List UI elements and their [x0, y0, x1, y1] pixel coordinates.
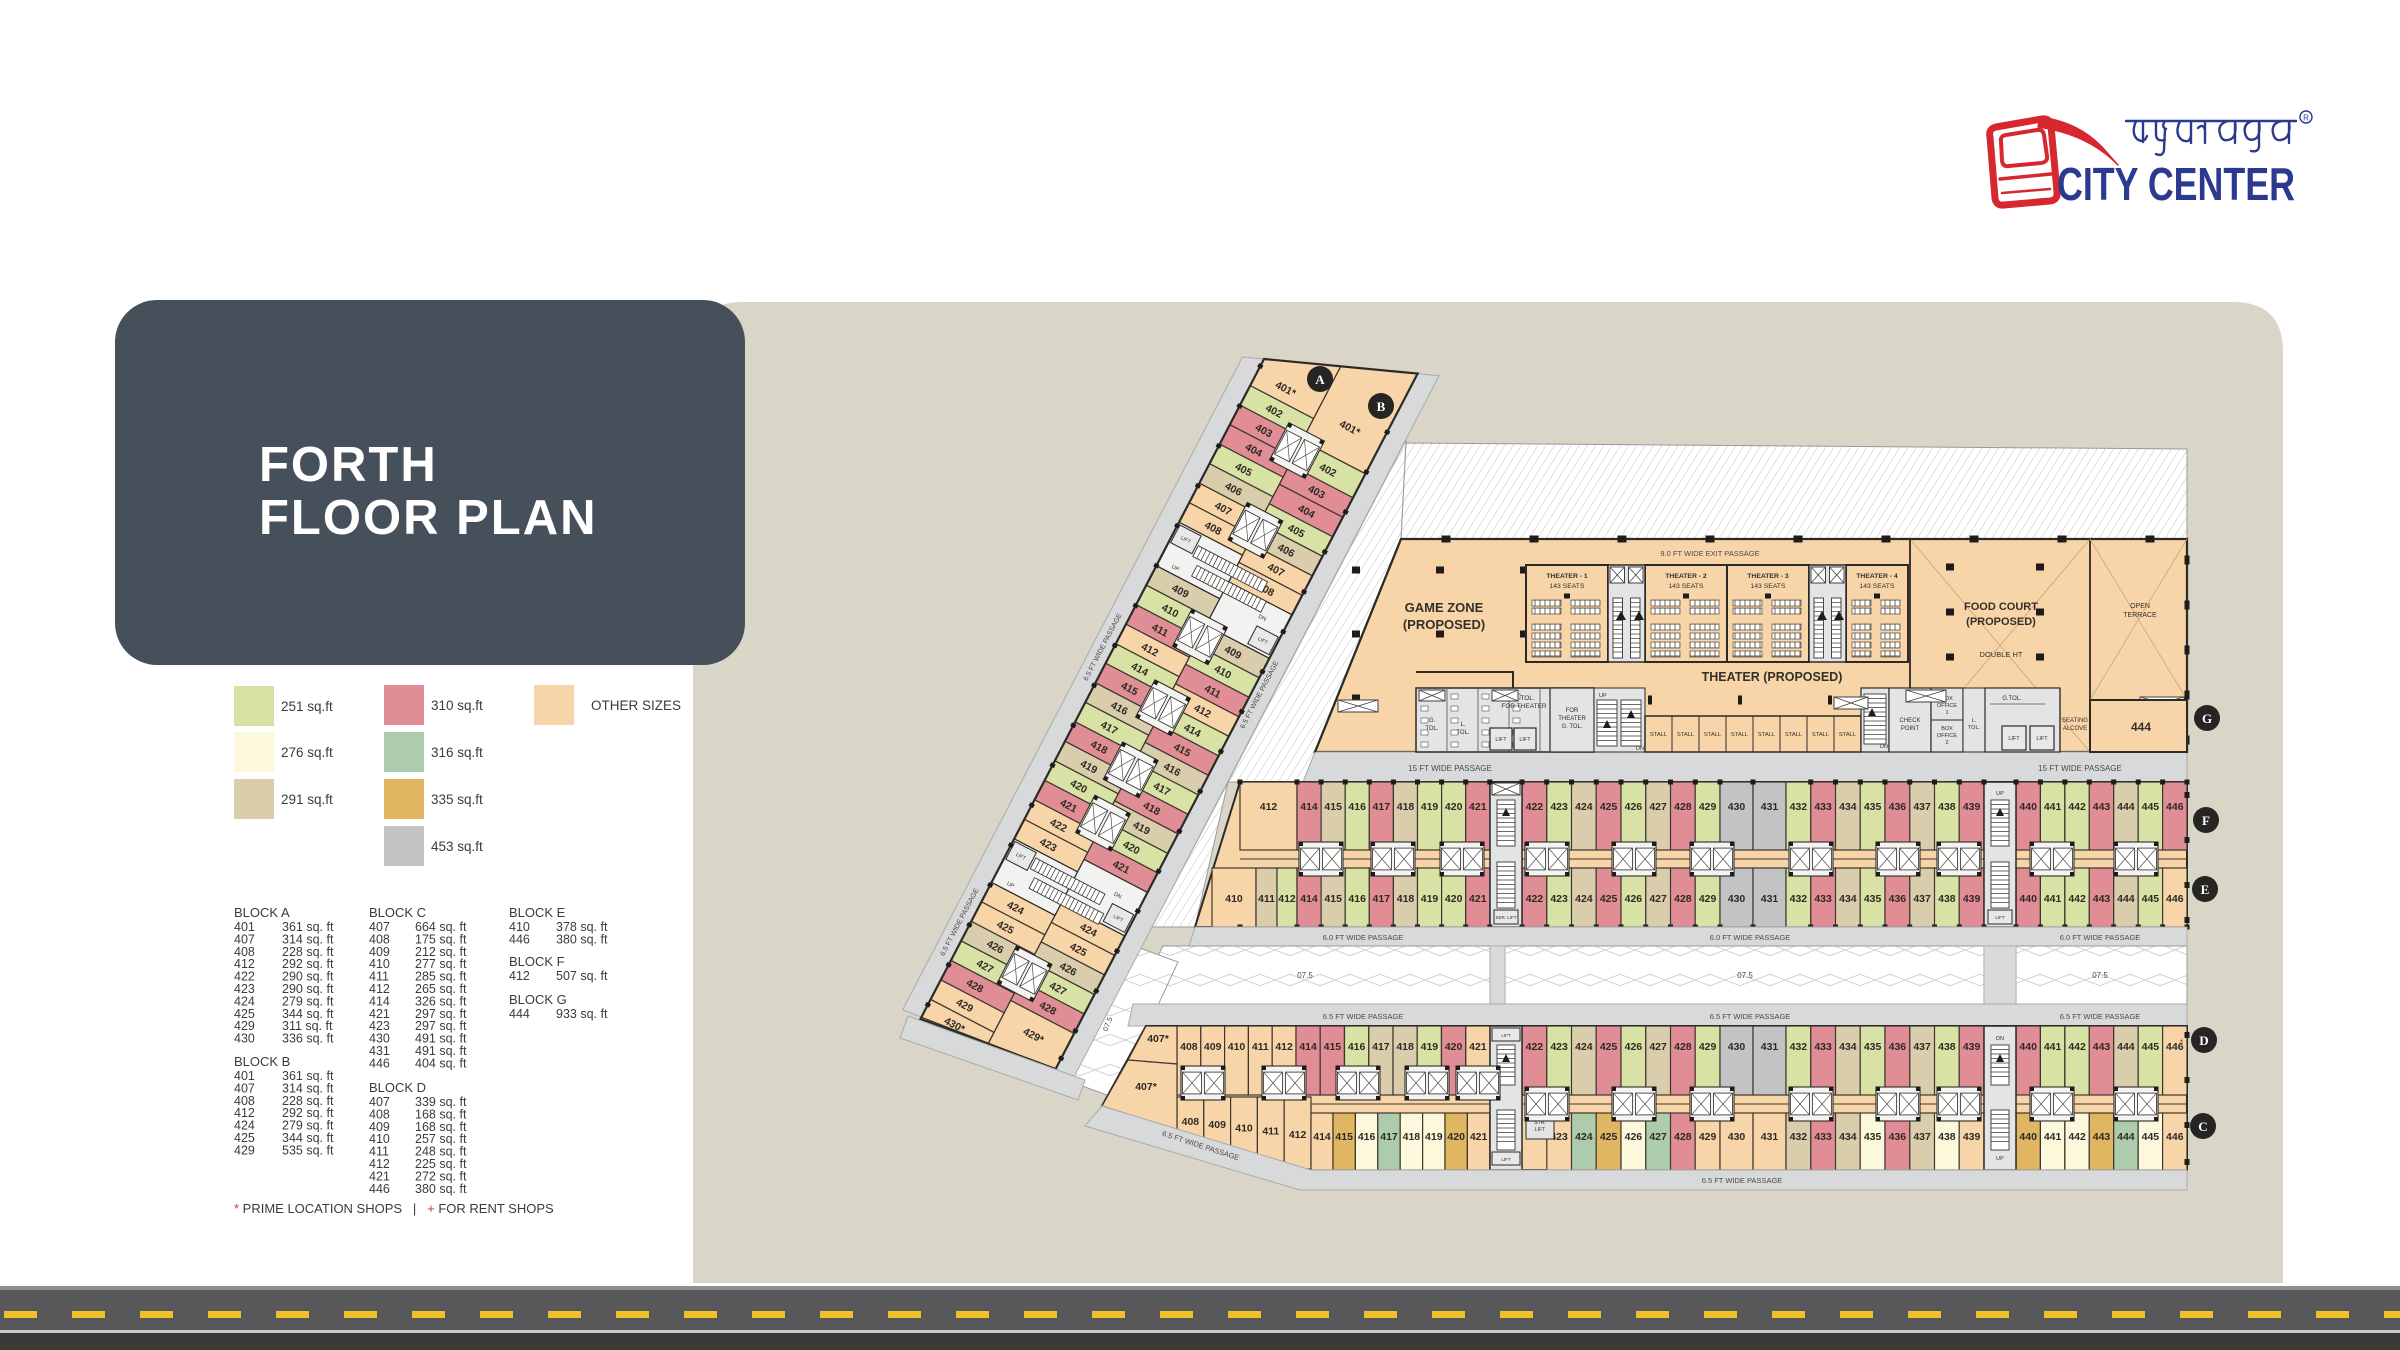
svg-text:STALL: STALL: [1758, 732, 1776, 738]
svg-text:416: 416: [1348, 1041, 1366, 1053]
svg-text:DN: DN: [1880, 744, 1888, 750]
svg-text:* PRIME LOCATION SHOPS | +: * PRIME LOCATION SHOPS | + FOR RENT SHOP…: [234, 1201, 554, 1216]
svg-text:G. TOL.: G. TOL.: [1561, 724, 1582, 730]
svg-text:429: 429: [1699, 893, 1717, 905]
svg-text:15 FT WIDE PASSAGE: 15 FT WIDE PASSAGE: [2038, 764, 2122, 773]
svg-text:6.0 FT WIDE PASSAGE: 6.0 FT WIDE PASSAGE: [1710, 933, 1791, 942]
svg-text:535 sq. ft: 535 sq. ft: [282, 1143, 334, 1157]
svg-text:444: 444: [2117, 801, 2135, 813]
svg-text:SEATING: SEATING: [2062, 718, 2088, 724]
svg-text:424: 424: [1575, 1041, 1593, 1053]
svg-text:431: 431: [1761, 801, 1779, 813]
svg-text:422: 422: [1526, 893, 1544, 905]
svg-text:507 sq. ft: 507 sq. ft: [556, 969, 608, 983]
svg-text:433: 433: [1814, 801, 1832, 813]
svg-text:441: 441: [2044, 1131, 2062, 1143]
svg-text:426: 426: [1625, 1131, 1643, 1143]
svg-text:438: 438: [1938, 1131, 1956, 1143]
svg-text:426: 426: [1625, 893, 1643, 905]
svg-text:419: 419: [1421, 1041, 1439, 1053]
svg-text:6.5 FT WIDE PASSAGE: 6.5 FT WIDE PASSAGE: [1710, 1012, 1791, 1021]
svg-text:421: 421: [1469, 893, 1487, 905]
svg-text:438: 438: [1938, 1041, 1956, 1053]
svg-text:410: 410: [1228, 1041, 1246, 1053]
svg-text:LIFT: LIFT: [1495, 737, 1507, 743]
svg-text:416: 416: [1348, 801, 1366, 813]
svg-text:446: 446: [2166, 801, 2184, 813]
svg-text:276 sq.ft: 276 sq.ft: [281, 745, 333, 760]
svg-text:420: 420: [1447, 1131, 1465, 1143]
svg-text:933 sq. ft: 933 sq. ft: [556, 1007, 608, 1021]
svg-text:F: F: [2202, 813, 2210, 828]
svg-text:411: 411: [1258, 893, 1275, 905]
svg-text:415: 415: [1324, 801, 1342, 813]
svg-text:DN: DN: [1636, 746, 1644, 752]
svg-text:431: 431: [1761, 1131, 1779, 1143]
svg-text:C: C: [2198, 1119, 2207, 1134]
svg-text:408: 408: [1180, 1041, 1198, 1053]
svg-text:442: 442: [2068, 1041, 2086, 1053]
svg-text:SER. LIFT: SER. LIFT: [1495, 915, 1516, 920]
svg-text:424: 424: [1575, 1131, 1593, 1143]
svg-text:BLOCK G: BLOCK G: [509, 992, 567, 1007]
svg-text:TERRACE: TERRACE: [2123, 612, 2157, 619]
svg-text:446: 446: [2166, 893, 2184, 905]
svg-text:437: 437: [1913, 801, 1931, 813]
svg-text:LIFT: LIFT: [1501, 1033, 1511, 1038]
svg-text:445: 445: [2142, 893, 2160, 905]
svg-text:408: 408: [1182, 1116, 1200, 1128]
svg-text:GAME ZONE: GAME ZONE: [1405, 600, 1484, 615]
svg-text:412: 412: [1278, 893, 1296, 905]
svg-text:LIFT: LIFT: [2036, 736, 2048, 742]
svg-text:421: 421: [1469, 801, 1487, 813]
svg-text:380 sq. ft: 380 sq. ft: [556, 932, 608, 946]
svg-text:FLOOR PLAN: FLOOR PLAN: [259, 491, 597, 545]
svg-text:STALL: STALL: [1677, 732, 1695, 738]
svg-text:426: 426: [1625, 1041, 1643, 1053]
svg-text:437: 437: [1913, 893, 1931, 905]
svg-text:1: 1: [1945, 710, 1948, 716]
svg-text:411: 411: [1252, 1041, 1269, 1053]
svg-text:418: 418: [1397, 801, 1415, 813]
svg-text:6.0 FT WIDE PASSAGE: 6.0 FT WIDE PASSAGE: [2060, 933, 2141, 942]
svg-text:427: 427: [1649, 1041, 1667, 1053]
svg-text:BLOCK D: BLOCK D: [369, 1080, 426, 1095]
svg-text:431: 431: [1761, 1041, 1779, 1053]
svg-text:316 sq.ft: 316 sq.ft: [431, 745, 483, 760]
svg-text:414: 414: [1299, 1041, 1317, 1053]
svg-text:291 sq.ft: 291 sq.ft: [281, 792, 333, 807]
svg-text:441: 441: [2044, 893, 2062, 905]
svg-text:ALCOVE: ALCOVE: [2063, 726, 2087, 732]
svg-text:423: 423: [1550, 801, 1568, 813]
svg-text:STALL: STALL: [1731, 732, 1749, 738]
svg-text:143 SEATS: 143 SEATS: [1859, 583, 1894, 590]
svg-text:429: 429: [234, 1143, 255, 1157]
svg-text:440: 440: [2019, 893, 2037, 905]
svg-text:420: 420: [1445, 1041, 1463, 1053]
svg-text:407*: 407*: [1147, 1033, 1170, 1045]
svg-text:429: 429: [1699, 801, 1717, 813]
svg-text:THEATER - 4: THEATER - 4: [1856, 573, 1898, 580]
svg-text:TOL.: TOL.: [1456, 730, 1470, 736]
svg-text:440: 440: [2019, 1131, 2037, 1143]
svg-text:420: 420: [1445, 893, 1463, 905]
svg-text:435: 435: [1864, 893, 1882, 905]
svg-text:444: 444: [2131, 720, 2151, 734]
svg-text:415: 415: [1335, 1131, 1353, 1143]
svg-text:442: 442: [2068, 1131, 2086, 1143]
svg-text:436: 436: [1889, 1041, 1907, 1053]
svg-text:436: 436: [1889, 1131, 1907, 1143]
svg-text:416: 416: [1358, 1131, 1376, 1143]
svg-text:G: G: [2202, 711, 2212, 726]
svg-text:444: 444: [2117, 1041, 2135, 1053]
svg-text:LIFT: LIFT: [1995, 915, 2005, 920]
svg-text:427: 427: [1649, 893, 1667, 905]
svg-text:THEATER - 3: THEATER - 3: [1747, 573, 1789, 580]
svg-text:412: 412: [1260, 801, 1278, 813]
svg-text:444: 444: [2117, 893, 2135, 905]
svg-text:428: 428: [1674, 1131, 1692, 1143]
svg-text:UP: UP: [1996, 1156, 2004, 1162]
svg-text:OFFICE: OFFICE: [1937, 703, 1957, 709]
svg-text:419: 419: [1421, 801, 1439, 813]
svg-text:426: 426: [1625, 801, 1643, 813]
svg-text:6.0 FT WIDE PASSAGE: 6.0 FT WIDE PASSAGE: [1323, 933, 1404, 942]
svg-text:BLOCK E: BLOCK E: [509, 905, 566, 920]
svg-text:15 FT WIDE PASSAGE: 15 FT WIDE PASSAGE: [1408, 764, 1492, 773]
svg-text:07.5: 07.5: [2092, 971, 2108, 980]
svg-text:428: 428: [1674, 893, 1692, 905]
svg-text:FOR THEATER: FOR THEATER: [1501, 703, 1547, 710]
svg-text:414: 414: [1313, 1131, 1331, 1143]
svg-text:445: 445: [2142, 1131, 2160, 1143]
svg-text:418: 418: [1397, 893, 1415, 905]
svg-text:LIFT: LIFT: [1501, 1157, 1511, 1162]
svg-text:443: 443: [2093, 1041, 2111, 1053]
svg-text:443: 443: [2093, 801, 2111, 813]
svg-text:440: 440: [2019, 1041, 2037, 1053]
svg-text:THEATER (PROPOSED): THEATER (PROPOSED): [1702, 670, 1843, 684]
svg-text:434: 434: [1839, 1041, 1857, 1053]
svg-text:446: 446: [369, 1182, 390, 1196]
svg-text:418: 418: [1396, 1041, 1414, 1053]
svg-text:431: 431: [1761, 893, 1779, 905]
svg-text:435: 435: [1864, 1131, 1882, 1143]
svg-text:434: 434: [1839, 801, 1857, 813]
svg-text:421: 421: [1469, 1041, 1487, 1053]
svg-text:TOL.: TOL.: [1425, 726, 1439, 732]
svg-text:G.: G.: [1429, 718, 1436, 724]
svg-text:430: 430: [1728, 1041, 1746, 1053]
svg-text:CITY CENTER: CITY CENTER: [2057, 158, 2295, 210]
svg-text:416: 416: [1348, 893, 1366, 905]
svg-text:412: 412: [509, 969, 530, 983]
svg-text:FOR: FOR: [1566, 708, 1579, 714]
svg-text:423: 423: [1550, 1041, 1568, 1053]
svg-text:OFFICE: OFFICE: [1937, 733, 1957, 739]
svg-text:LIFT: LIFT: [2008, 736, 2020, 742]
svg-text:FORTH: FORTH: [259, 438, 438, 492]
svg-text:446: 446: [2166, 1131, 2184, 1143]
svg-text:TOL.: TOL.: [1968, 725, 1981, 731]
svg-text:LIFT: LIFT: [1535, 1127, 1545, 1133]
svg-text:409: 409: [1204, 1041, 1222, 1053]
svg-text:A: A: [1315, 372, 1325, 387]
svg-text:437: 437: [1913, 1041, 1931, 1053]
svg-text:6.5 FT WIDE PASSAGE: 6.5 FT WIDE PASSAGE: [1702, 1176, 1783, 1185]
svg-text:LIFT: LIFT: [1519, 737, 1531, 743]
svg-text:417: 417: [1372, 1041, 1390, 1053]
svg-text:9.0 FT WIDE EXIT PASSAGE: 9.0 FT WIDE EXIT PASSAGE: [1660, 549, 1759, 558]
svg-text:421: 421: [1470, 1131, 1488, 1143]
svg-text:427: 427: [1649, 1131, 1667, 1143]
svg-text:435: 435: [1864, 1041, 1882, 1053]
svg-text:143 SEATS: 143 SEATS: [1750, 583, 1785, 590]
svg-text:143 SEATS: 143 SEATS: [1549, 583, 1584, 590]
svg-text:OPEN: OPEN: [2130, 603, 2150, 610]
svg-text:411: 411: [1262, 1126, 1279, 1138]
svg-text:417: 417: [1373, 801, 1391, 813]
svg-text:428: 428: [1674, 801, 1692, 813]
svg-text:417: 417: [1373, 893, 1391, 905]
svg-text:439: 439: [1963, 1041, 1981, 1053]
svg-text:419: 419: [1425, 1131, 1443, 1143]
svg-text:429: 429: [1699, 1131, 1717, 1143]
svg-text:THEATER - 1: THEATER - 1: [1546, 573, 1588, 580]
svg-text:407*: 407*: [1135, 1081, 1158, 1093]
svg-text:310 sq.ft: 310 sq.ft: [431, 698, 483, 713]
svg-text:THEATER: THEATER: [1558, 716, 1586, 722]
svg-text:UP: UP: [1996, 791, 2004, 797]
svg-text:251 sq.ft: 251 sq.ft: [281, 699, 333, 714]
svg-text:412: 412: [1275, 1041, 1293, 1053]
svg-text:439: 439: [1963, 893, 1981, 905]
svg-text:444: 444: [509, 1007, 530, 1021]
svg-text:446: 446: [369, 1056, 390, 1070]
svg-text:414: 414: [1300, 801, 1318, 813]
svg-text:BLOCK A: BLOCK A: [234, 905, 290, 920]
svg-text:STALL: STALL: [1704, 732, 1722, 738]
svg-text:STALL: STALL: [1785, 732, 1803, 738]
svg-text:404 sq. ft: 404 sq. ft: [415, 1056, 467, 1070]
svg-text:442: 442: [2068, 893, 2086, 905]
svg-text:FOOD COURT: FOOD COURT: [1964, 601, 2038, 613]
svg-text:417: 417: [1380, 1131, 1398, 1143]
svg-text:412: 412: [1289, 1129, 1307, 1141]
svg-text:445: 445: [2142, 801, 2160, 813]
svg-text:G.TOL.: G.TOL.: [2002, 696, 2022, 702]
svg-text:420: 420: [1445, 801, 1463, 813]
svg-text:436: 436: [1889, 801, 1907, 813]
svg-text:419: 419: [1421, 893, 1439, 905]
svg-text:433: 433: [1814, 1041, 1832, 1053]
svg-text:428: 428: [1674, 1041, 1692, 1053]
svg-text:424: 424: [1575, 801, 1593, 813]
svg-text:415: 415: [1324, 893, 1342, 905]
svg-text:CHECK: CHECK: [1899, 718, 1920, 724]
svg-text:380 sq. ft: 380 sq. ft: [415, 1182, 467, 1196]
svg-text:(PROPOSED): (PROPOSED): [1966, 616, 2036, 628]
svg-text:POINT: POINT: [1901, 726, 1920, 732]
svg-text:432: 432: [1790, 1131, 1808, 1143]
svg-text:432: 432: [1790, 893, 1808, 905]
svg-text:453 sq.ft: 453 sq.ft: [431, 839, 483, 854]
svg-text:429: 429: [1699, 1041, 1717, 1053]
svg-text:(PROPOSED): (PROPOSED): [1403, 617, 1485, 632]
svg-text:D: D: [2199, 1033, 2208, 1048]
svg-text:STALL: STALL: [1650, 732, 1668, 738]
svg-text:433: 433: [1814, 893, 1832, 905]
svg-text:414: 414: [1300, 893, 1318, 905]
svg-text:432: 432: [1790, 1041, 1808, 1053]
svg-text:2: 2: [1945, 740, 1948, 746]
svg-text:432: 432: [1790, 801, 1808, 813]
svg-text:OTHER SIZES: OTHER SIZES: [591, 698, 681, 713]
svg-text:438: 438: [1938, 893, 1956, 905]
svg-text:427: 427: [1649, 801, 1667, 813]
svg-text:445: 445: [2142, 1041, 2160, 1053]
svg-text:443: 443: [2093, 1131, 2111, 1143]
svg-text:434: 434: [1839, 893, 1857, 905]
svg-text:410: 410: [1225, 893, 1243, 905]
svg-text:409: 409: [1208, 1119, 1226, 1131]
svg-text:L.: L.: [1972, 718, 1977, 724]
svg-text:422: 422: [1526, 801, 1544, 813]
svg-text:440: 440: [2019, 801, 2037, 813]
svg-text:336 sq. ft: 336 sq. ft: [282, 1032, 334, 1046]
svg-text:439: 439: [1963, 1131, 1981, 1143]
svg-text:DN: DN: [1996, 1036, 2004, 1042]
svg-text:438: 438: [1938, 801, 1956, 813]
svg-text:430: 430: [234, 1032, 255, 1046]
svg-text:DOUBLE HT: DOUBLE HT: [1980, 650, 2023, 659]
svg-text:STALL: STALL: [1839, 732, 1857, 738]
svg-text:436: 436: [1889, 893, 1907, 905]
svg-text:441: 441: [2044, 801, 2062, 813]
svg-text:07.5: 07.5: [1297, 971, 1313, 980]
svg-text:415: 415: [1324, 1041, 1342, 1053]
svg-text:430: 430: [1728, 801, 1746, 813]
svg-text:425: 425: [1600, 893, 1618, 905]
svg-text:UP: UP: [1599, 693, 1607, 699]
svg-text:6.5 FT WIDE PASSAGE: 6.5 FT WIDE PASSAGE: [2060, 1012, 2141, 1021]
svg-text:07.5: 07.5: [1737, 971, 1753, 980]
svg-text:R: R: [2303, 114, 2309, 123]
svg-text:B: B: [1377, 399, 1386, 414]
svg-text:439: 439: [1963, 801, 1981, 813]
svg-text:446: 446: [509, 932, 530, 946]
svg-text:418: 418: [1403, 1131, 1421, 1143]
svg-text:*: *: [2180, 1038, 2184, 1049]
svg-text:442: 442: [2068, 801, 2086, 813]
svg-text:425: 425: [1600, 1041, 1618, 1053]
svg-text:437: 437: [1913, 1131, 1931, 1143]
svg-text:434: 434: [1839, 1131, 1857, 1143]
svg-text:425: 425: [1600, 801, 1618, 813]
svg-text:435: 435: [1864, 801, 1882, 813]
svg-text:444: 444: [2117, 1131, 2135, 1143]
svg-text:335 sq.ft: 335 sq.ft: [431, 792, 483, 807]
svg-text:430: 430: [1728, 1131, 1746, 1143]
svg-text:423: 423: [1550, 893, 1568, 905]
svg-text:E: E: [2201, 882, 2210, 897]
svg-text:THEATER - 2: THEATER - 2: [1665, 573, 1707, 580]
svg-text:425: 425: [1600, 1131, 1618, 1143]
svg-text:6.5 FT WIDE PASSAGE: 6.5 FT WIDE PASSAGE: [1323, 1012, 1404, 1021]
svg-text:433: 433: [1814, 1131, 1832, 1143]
svg-text:430: 430: [1728, 893, 1746, 905]
svg-text:BOX: BOX: [1941, 726, 1953, 732]
svg-text:L.: L.: [1460, 722, 1465, 728]
svg-text:BLOCK C: BLOCK C: [369, 905, 426, 920]
svg-text:424: 424: [1575, 893, 1593, 905]
svg-text:BLOCK F: BLOCK F: [509, 954, 565, 969]
svg-text:143 SEATS: 143 SEATS: [1668, 583, 1703, 590]
svg-text:BLOCK B: BLOCK B: [234, 1054, 290, 1069]
svg-text:410: 410: [1235, 1122, 1253, 1134]
svg-text:441: 441: [2044, 1041, 2062, 1053]
svg-text:422: 422: [1526, 1041, 1544, 1053]
svg-text:STALL: STALL: [1812, 732, 1830, 738]
svg-text:443: 443: [2093, 893, 2111, 905]
